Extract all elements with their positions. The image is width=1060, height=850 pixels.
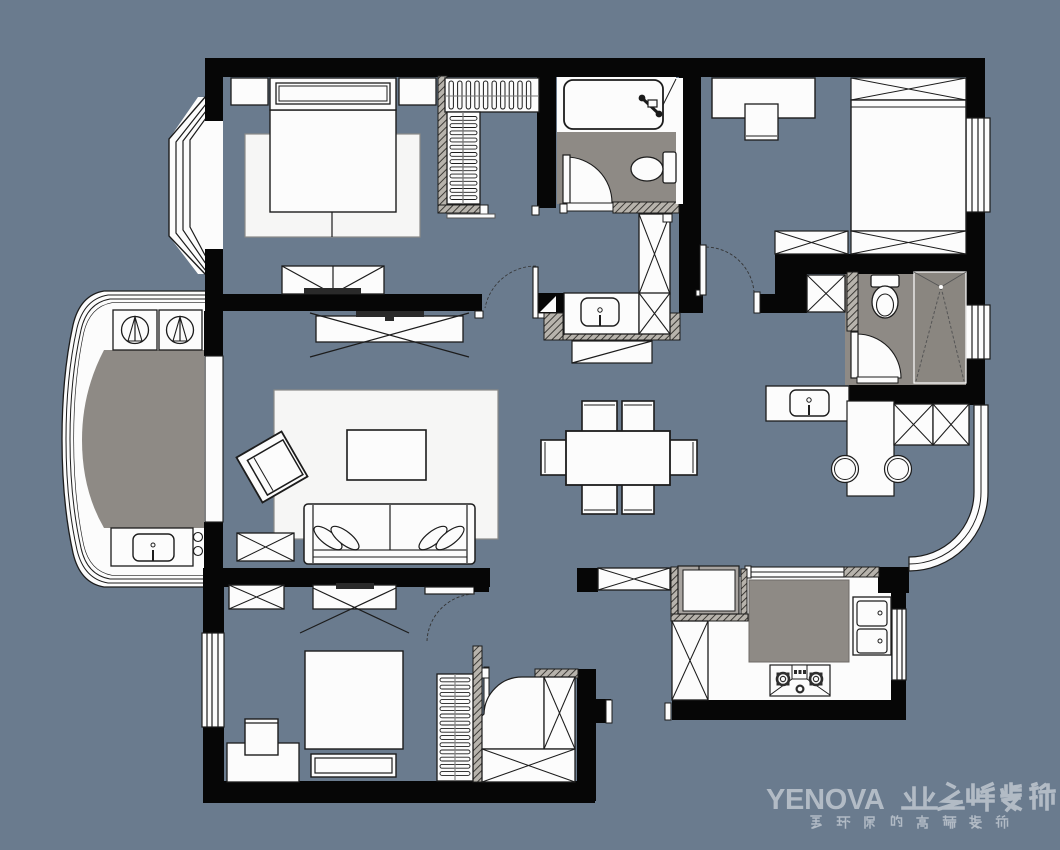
svg-text:YENOVA: YENOVA [766, 784, 885, 816]
